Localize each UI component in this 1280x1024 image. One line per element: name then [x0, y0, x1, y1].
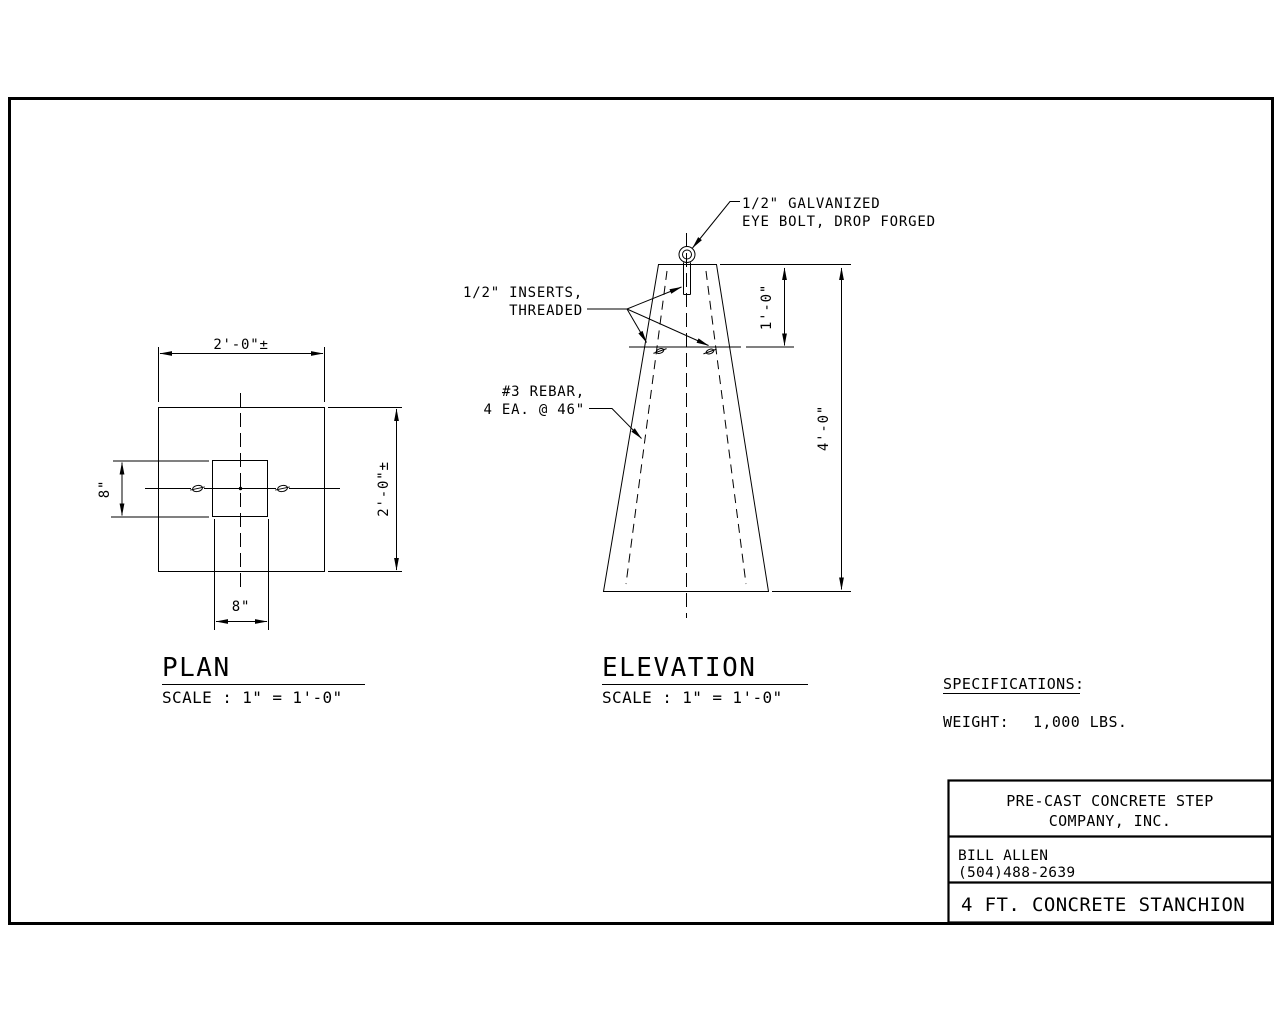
plan-scale-note: SCALE : 1" = 1'-0" — [162, 688, 343, 707]
insert-symbol-left — [653, 347, 668, 356]
elevation-dim-insert-depth-text: 1'-0" — [759, 284, 775, 330]
inserts-leader-right — [627, 309, 709, 346]
weight-value: 1,000 LBS. — [1033, 713, 1127, 731]
contact-phone: (504)488-2639 — [958, 865, 1075, 881]
rebar-label-line2: 4 EA. @ 46" — [483, 402, 585, 418]
specifications-section: SPECIFICATIONS: WEIGHT: 1,000 LBS. — [943, 675, 1127, 731]
elevation-scale-note: SCALE : 1" = 1'-0" — [602, 688, 783, 707]
contact-name: BILL ALLEN — [958, 848, 1048, 864]
plan-dim-core-width-text: 8" — [232, 599, 250, 615]
elevation-dim-height-text: 4'-0" — [816, 405, 832, 451]
inserts-label-line2: THREADED — [509, 303, 583, 319]
drawing-sheet: 2'-0"± 2'-0"± 8" 8" PLAN SCALE : 1" = 1'… — [0, 0, 1280, 1024]
annotation-inserts: 1/2" INSERTS, THREADED — [463, 285, 708, 346]
plan-insert-symbol-left — [190, 484, 206, 493]
company-name-line1: PRE-CAST CONCRETE STEP — [1006, 792, 1213, 810]
title-block: PRE-CAST CONCRETE STEP COMPANY, INC. BIL… — [949, 781, 1273, 923]
elevation-dim-height: 4'-0" — [772, 268, 851, 592]
eye-bolt-leader — [693, 202, 741, 249]
company-name-line2: COMPANY, INC. — [1049, 812, 1172, 830]
plan-center-point — [239, 487, 242, 490]
plan-insert-symbol-right — [275, 484, 291, 493]
elevation-title: ELEVATION — [602, 653, 756, 683]
plan-dim-width-text: 2'-0"± — [213, 337, 268, 353]
drawing-title: 4 FT. CONCRETE STANCHION — [961, 894, 1245, 916]
plan-centerlines — [145, 393, 340, 588]
annotation-rebar: #3 REBAR, 4 EA. @ 46" — [483, 384, 641, 439]
specifications-heading: SPECIFICATIONS: — [943, 675, 1084, 693]
inserts-leader-left — [627, 309, 647, 343]
drawing-canvas: 2'-0"± 2'-0"± 8" 8" PLAN SCALE : 1" = 1'… — [0, 0, 1280, 1024]
eye-bolt-label-line2: EYE BOLT, DROP FORGED — [742, 214, 936, 230]
inserts-label-line1: 1/2" INSERTS, — [463, 285, 583, 301]
plan-dim-core-width: 8" — [215, 519, 269, 630]
annotation-eye-bolt: 1/2" GALVANIZED EYE BOLT, DROP FORGED — [693, 196, 936, 248]
plan-view: 2'-0"± 2'-0"± 8" 8" PLAN SCALE : 1" = 1'… — [97, 337, 402, 707]
insert-symbol-right — [703, 347, 718, 356]
plan-dim-core-height-text: 8" — [97, 480, 113, 498]
weight-label: WEIGHT: — [943, 713, 1009, 731]
plan-dim-height-text: 2'-0"± — [376, 461, 392, 516]
rebar-label-line1: #3 REBAR, — [502, 384, 585, 400]
plan-title: PLAN — [162, 653, 231, 683]
plan-dim-width: 2'-0"± — [159, 337, 325, 402]
plan-dim-height: 2'-0"± — [328, 408, 402, 572]
elevation-dim-insert-depth: 1'-0" — [720, 265, 851, 348]
eye-bolt-label-line1: 1/2" GALVANIZED — [742, 196, 880, 212]
